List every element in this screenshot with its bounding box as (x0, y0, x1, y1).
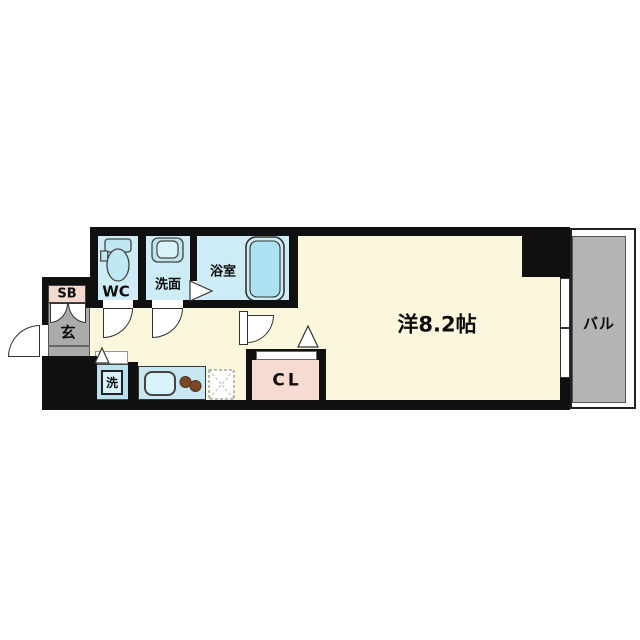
closet-door-strip (256, 351, 317, 360)
sink-icon (151, 237, 185, 264)
kitchen-sink (144, 371, 176, 396)
wall-shoebox-top (42, 277, 90, 285)
bathroom-label: 浴室 (210, 266, 236, 279)
floor-plan: 洗 (0, 0, 640, 640)
wall-bathroom-right (289, 236, 298, 308)
bathtub-icon (245, 236, 286, 303)
stove-burners-icon (178, 374, 204, 393)
toilet-door-gap (103, 300, 133, 308)
wall-washroom-bathroom (190, 236, 197, 281)
closet-label: CL (272, 373, 301, 390)
wall-laundry-kitchen (128, 362, 138, 402)
laundry-door-icon (94, 346, 111, 365)
wall-water-bottom-a (90, 300, 103, 308)
washing-machine: 洗 (101, 370, 123, 395)
wall-bottom (42, 400, 570, 410)
toilet-label: WC (102, 285, 130, 300)
main-room-label: 洋8.2帖 (397, 315, 476, 336)
washroom-label: 洗面 (155, 279, 181, 292)
wall-toilet-washroom (138, 236, 146, 301)
wall-left-upper (42, 285, 48, 325)
refrigerator-space (208, 369, 235, 400)
balcony-label: バル (583, 317, 615, 332)
shoebox-label: SB (57, 288, 76, 301)
laundry-label: 洗 (106, 377, 118, 389)
wall-corner-mass (42, 356, 97, 410)
toilet-icon (100, 237, 136, 283)
closet-door-icon (296, 324, 320, 349)
front-door-gap (42, 325, 48, 356)
washroom-door-gap (152, 300, 183, 308)
entrance-label: 玄 (60, 326, 75, 341)
bathroom-door-icon (188, 279, 214, 303)
front-door-swing-icon (8, 325, 40, 357)
balcony-window-divider (560, 327, 570, 329)
wall-top (90, 227, 570, 236)
wall-water-bottom-b (133, 300, 152, 308)
wall-right-upper (560, 236, 570, 278)
entrance-step-line (48, 345, 90, 347)
